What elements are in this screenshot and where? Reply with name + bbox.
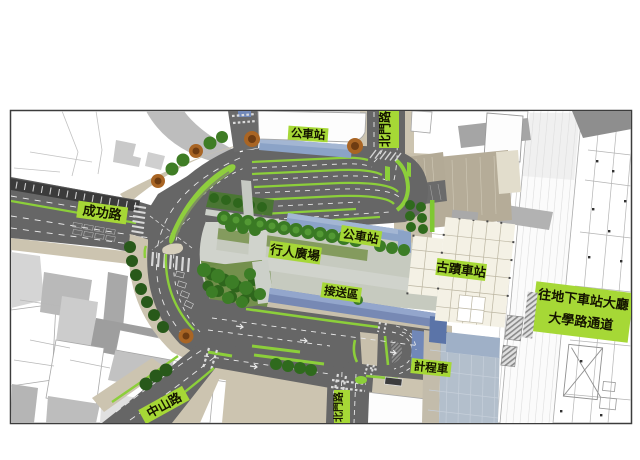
svg-text:北門路: 北門路 xyxy=(332,391,345,422)
svg-text:北門路: 北門路 xyxy=(377,110,392,147)
